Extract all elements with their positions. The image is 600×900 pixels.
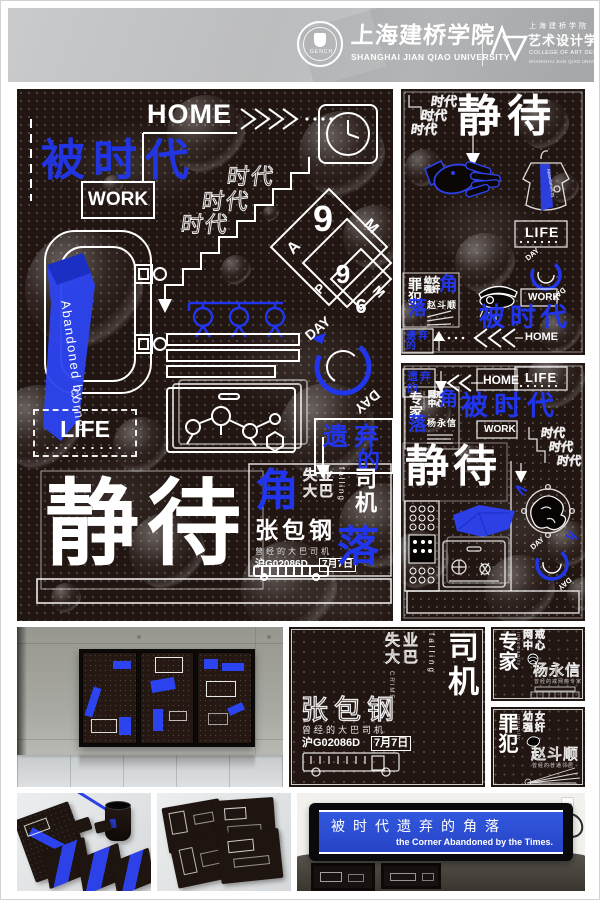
criminal-topic-row2: 强奸 — [523, 724, 547, 734]
wall-seam — [17, 643, 283, 644]
driver-plate: 沪G02086D — [255, 560, 308, 570]
work-label: WORK — [88, 189, 148, 211]
criminal-en: impunity — [515, 714, 520, 741]
criminal-name: 赵斗顺 — [427, 301, 457, 310]
jiao-char: 角 — [439, 390, 458, 409]
expert-topic-row2: 中心 — [523, 642, 547, 652]
luo-char: 落 — [337, 526, 379, 568]
mini-white-mark — [91, 719, 117, 733]
criminal-topic-row2: 强奸 — [424, 286, 440, 294]
work-label: WORK — [484, 425, 516, 435]
booklet-white-mark — [227, 839, 254, 854]
mini-blue-mark — [222, 663, 244, 671]
expert-en: inhumanity — [515, 632, 520, 666]
bus-illustration — [302, 751, 412, 779]
mockup-cards — [157, 793, 291, 891]
jiao-char: 角 — [255, 469, 299, 513]
window-card-icon — [167, 380, 307, 452]
wall-shadow-left — [17, 627, 27, 755]
home-label: HOME — [147, 101, 232, 128]
luo-char: 落 — [408, 415, 427, 434]
era-title-blue: 被时代 — [41, 139, 197, 183]
driver-tag-row1: 失业 — [385, 633, 421, 648]
mini-blue-mark — [119, 717, 131, 735]
driver-subtitle: 曾经的大巴司机 — [255, 548, 332, 556]
panel-driver: 失业 大巴 falling 司机 CRIME 张包钢 曾经的大巴司机 沪G020… — [289, 627, 485, 787]
college-av-logo-icon — [489, 22, 529, 68]
poster-right-bottom: DAY DAY 遗弃 的 HOME LIFE 专家 inhumanity 网戒 … — [401, 363, 585, 621]
diamond-hour-9am: 9 — [313, 198, 333, 239]
mini-blue-mark — [85, 686, 102, 717]
mini-blue-mark — [150, 677, 176, 693]
booklet-white-mark — [179, 847, 198, 875]
header-divider — [482, 24, 483, 66]
falling-label: falling — [427, 633, 435, 675]
booklet-white-mark — [168, 810, 188, 834]
era-outline-2: 时代 — [420, 109, 448, 122]
led-screen: 被时代遗弃的角落 the Corner Abandoned by the Tim… — [319, 810, 563, 854]
wall-poster — [82, 652, 137, 744]
driver-name: 张包钢 — [255, 519, 336, 542]
people-chain-icon — [189, 303, 284, 337]
diamond-p: P — [312, 280, 329, 297]
clock-icon — [319, 105, 377, 163]
panel-criminal: 罪犯 impunity 幼女 强奸 赵斗顺 曾经的普通邻居 — [491, 707, 585, 787]
university-seal-icon: GENCH — [297, 21, 343, 67]
era-outline-2: 时代 — [200, 191, 251, 213]
life-label: LIFE — [525, 371, 557, 384]
seal-shield — [314, 33, 326, 47]
blue-paper-icon — [453, 505, 515, 537]
bar-rows — [167, 334, 299, 377]
mini-blue-mark — [153, 709, 163, 731]
era-outline-1: 时代 — [225, 166, 276, 188]
criminal-name: 赵斗顺 — [531, 747, 579, 762]
criminal-tag: 罪犯 — [496, 713, 516, 753]
expert-name: 杨永信 — [427, 419, 457, 428]
life-label: LIFE — [525, 225, 559, 239]
diamond-a: A — [284, 237, 305, 258]
waiting-title: 静待 — [457, 95, 557, 139]
era-outline-1: 时代 — [430, 95, 458, 108]
mockup-booklet — [217, 828, 284, 884]
booklet-white-mark — [233, 855, 270, 868]
day-cycle-icon: DAY DAY — [302, 312, 384, 417]
mini-blue-mark — [204, 659, 218, 669]
booklet-white-mark — [193, 812, 214, 825]
waiting-title: 静待 — [45, 477, 249, 571]
era-outline-2: 时代 — [548, 441, 574, 453]
hand-illustration — [523, 767, 581, 785]
mockup-stationery — [17, 793, 151, 891]
floor — [17, 755, 283, 787]
poster-main: 9 A M 9 P M 6 Abandoned by corner — [17, 89, 393, 621]
driver-tag-row2: 大巴 — [303, 484, 335, 498]
era-outline-3: 时代 — [179, 214, 230, 236]
waiting-title: 静待 — [405, 445, 501, 489]
header-banner: GENCH 上海建桥学院 SHANGHAI JIAN QIAO UNIVERSI… — [8, 8, 594, 82]
driver-date: 7月7日 — [371, 736, 411, 751]
photo-wall-mockup — [17, 627, 283, 787]
college-sub-en: SHANGHAI JIAN QIAO UNIVERSITY — [529, 60, 594, 64]
day-label: DAY — [524, 246, 541, 263]
abandoned-chars-row2: 的 — [406, 342, 416, 352]
led-text-en: the Corner Abandoned by the Times. — [396, 837, 553, 847]
university-name-en: SHANGHAI JIAN QIAO UNIVERSITY — [351, 53, 510, 62]
era-outline-3: 时代 — [410, 123, 438, 136]
panel-expert: 专家 inhumanity 网戒 中心 杨永信 曾经的戒网瘾专家 — [491, 627, 585, 701]
driver-tag-row2: 大巴 — [385, 650, 421, 665]
bottom-strip-box — [37, 579, 391, 603]
expert-name: 杨永信 — [533, 663, 581, 678]
time-diamond: 9 A M 9 P M 6 — [271, 189, 391, 318]
life-box: LIFE — [33, 409, 137, 457]
college-name-cn: 艺术设计学院 — [528, 34, 594, 47]
home-label: HOME — [483, 374, 519, 386]
machine-illustration — [529, 686, 583, 699]
life-dots — [43, 444, 127, 451]
mini-blue-mark — [227, 702, 245, 716]
photo-led-display: 被时代遗弃的角落 the Corner Abandoned by the Tim… — [297, 793, 585, 891]
driver-tag-row1: 失业 — [303, 468, 335, 482]
expert-en: inhumanity — [422, 391, 426, 410]
life-label: LIFE — [35, 416, 135, 443]
keypad-icon — [405, 501, 439, 591]
era-title-blue: 被时代 — [479, 304, 572, 330]
diamond-hour-6: 6 — [355, 296, 366, 318]
wall-seam-vertical — [255, 627, 256, 755]
criminal-block-illustration — [427, 311, 453, 325]
glove-icon — [425, 161, 501, 198]
poster-right-top: Abandoned by DAY DAY — [401, 89, 585, 355]
brain-icon — [516, 485, 577, 539]
wall-poster — [197, 652, 252, 744]
university-name-cn: 上海建桥学院 — [350, 24, 496, 47]
era-outline-3: 时代 — [556, 455, 582, 467]
day-label: DAY — [529, 535, 546, 552]
bottom-strip-box — [407, 591, 579, 613]
design-portfolio-page: GENCH 上海建桥学院 SHANGHAI JIAN QIAO UNIVERSI… — [0, 0, 600, 900]
abandoned-chars-row1: 遗弃 — [407, 372, 433, 383]
college-cn-top: 上海建桥学院 — [529, 23, 589, 30]
booklet-white-mark — [224, 807, 247, 821]
window-card-icon — [443, 537, 509, 587]
criminal-topic-row1: 幼女 — [424, 277, 440, 285]
jiao-char: 角 — [439, 275, 458, 294]
era-outline-1: 时代 — [540, 427, 566, 439]
wall-bolt — [137, 635, 141, 639]
mini-white-mark — [208, 713, 228, 725]
dress-icon: Abandoned by — [523, 151, 569, 211]
work-box: WORK — [81, 181, 155, 219]
criminal-topic-row1: 幼女 — [523, 713, 547, 723]
diamond-hour-9pm: 9 — [336, 259, 350, 289]
driver-role: 司机 — [353, 467, 375, 515]
home-label: HOME — [525, 332, 558, 343]
mini-white-mark — [169, 711, 187, 721]
luo-char: 落 — [408, 299, 427, 318]
mini-white-mark — [155, 657, 183, 673]
seal-text: GENCH — [310, 50, 333, 55]
wall-poster — [140, 652, 195, 744]
day-cycle-icon: DAY DAY — [529, 535, 574, 592]
driver-name: 张包钢 — [301, 697, 400, 724]
driver-subtitle: 曾经的大巴司机 — [302, 726, 386, 735]
driver-plate: 沪G02086D — [302, 738, 360, 749]
falling-label: falling — [337, 467, 345, 502]
expert-tag: 专家 — [496, 631, 516, 671]
expert-subtitle: 曾经的戒网瘾专家 — [534, 680, 582, 685]
up-arrow — [433, 331, 445, 351]
era-title-blue: 被时代 — [461, 393, 560, 420]
expert-topic-row1: 网戒 — [523, 631, 547, 641]
mini-blue-mark — [113, 661, 131, 669]
led-screen-bezel: 被时代遗弃的角落 the Corner Abandoned by the Tim… — [309, 803, 573, 861]
wall-bolt — [267, 635, 271, 639]
wall-poster-board — [79, 649, 255, 747]
mini-white-mark — [206, 681, 236, 697]
led-text-cn: 被时代遗弃的角落 — [331, 819, 507, 833]
cup-rim — [105, 801, 131, 810]
floor-reflection — [79, 755, 255, 769]
driver-role: 司机 — [445, 631, 476, 699]
college-name-en: COLLEGE OF ART DESIGN — [529, 51, 594, 57]
